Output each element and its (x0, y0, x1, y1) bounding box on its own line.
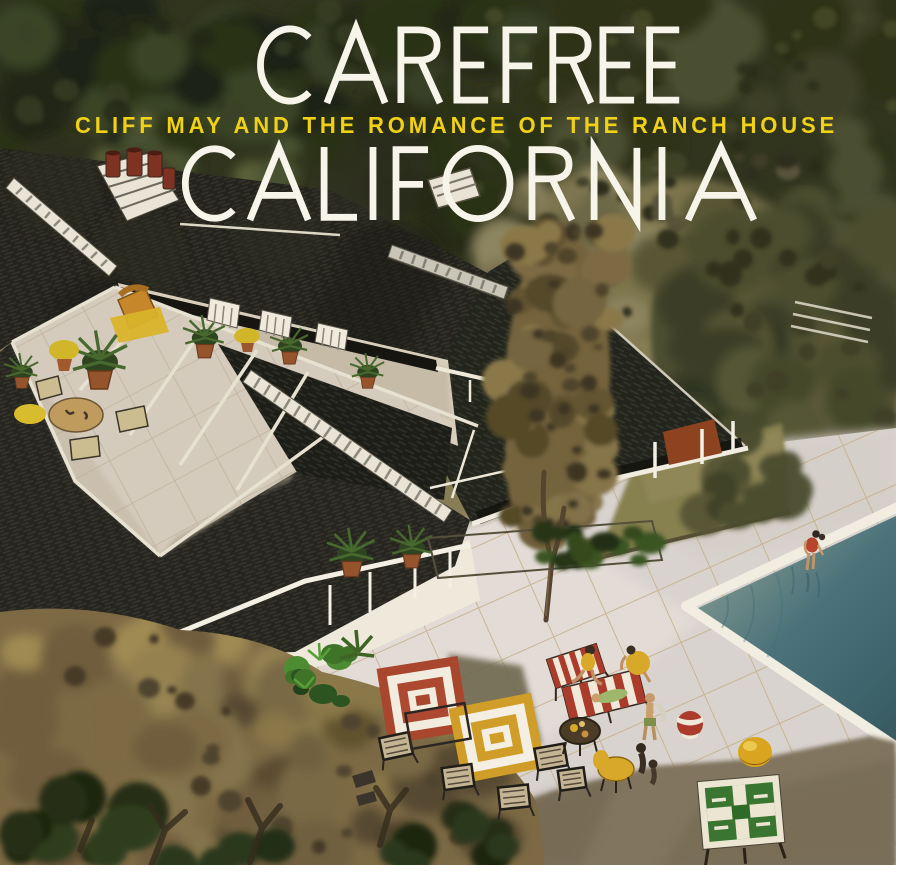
svg-text:CLIFF MAY AND THE ROMANCE OF T: CLIFF MAY AND THE ROMANCE OF THE RANCH H… (75, 112, 838, 138)
